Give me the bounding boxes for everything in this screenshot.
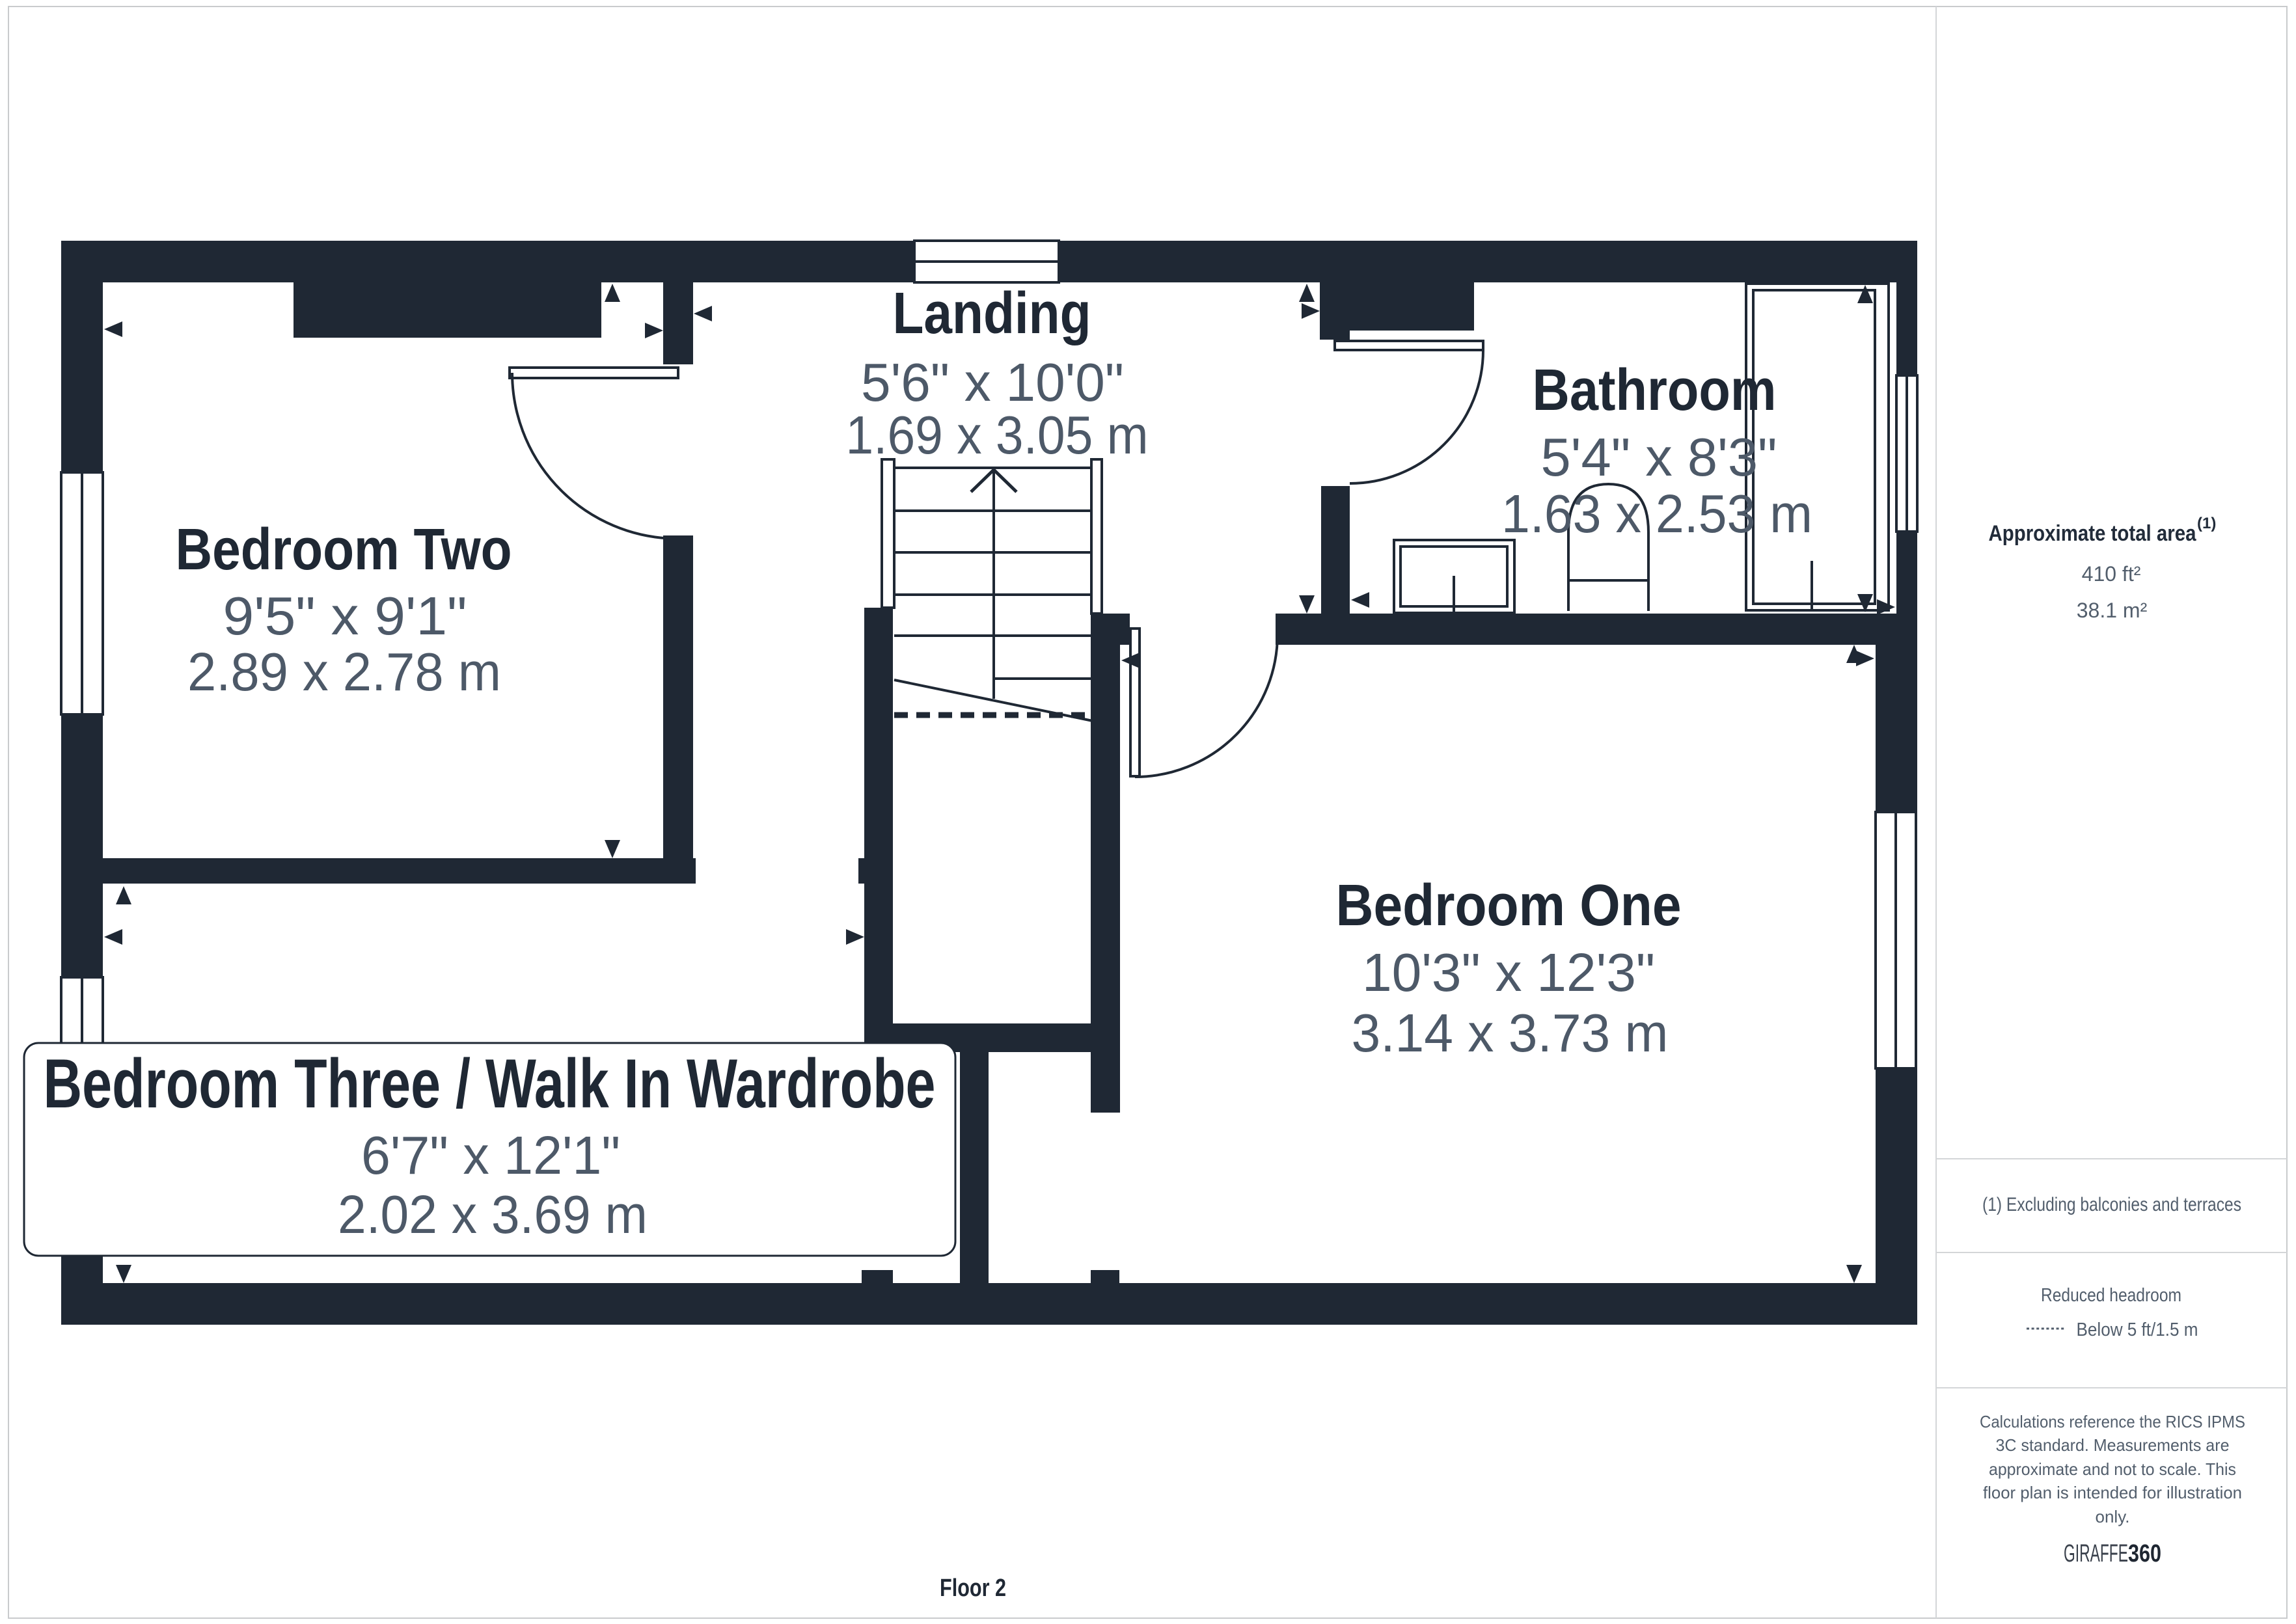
svg-text:38.1 m²: 38.1 m² [2077,599,2148,622]
svg-text:Bathroom: Bathroom [1533,358,1777,423]
svg-text:Floor 2: Floor 2 [940,1575,1006,1602]
svg-text:(1): (1) [2197,515,2216,532]
svg-text:10'3" x 12'3": 10'3" x 12'3" [1362,942,1655,1003]
svg-text:Bedroom Three / Walk In Wardro: Bedroom Three / Walk In Wardrobe [44,1044,936,1122]
svg-text:approximate and not to scale.: approximate and not to scale. This [1989,1459,2236,1479]
svg-text:Bedroom Two: Bedroom Two [176,517,512,582]
svg-text:360: 360 [2128,1540,2161,1567]
svg-text:5'6" x 10'0": 5'6" x 10'0" [861,352,1124,413]
svg-text:2.02 x 3.69 m: 2.02 x 3.69 m [338,1184,648,1245]
svg-text:Below 5 ft/1.5 m: Below 5 ft/1.5 m [2077,1319,2198,1340]
svg-text:Reduced headroom: Reduced headroom [2041,1285,2181,1306]
svg-text:9'5" x 9'1": 9'5" x 9'1" [223,586,467,646]
svg-text:3.14 x 3.73 m: 3.14 x 3.73 m [1352,1003,1669,1063]
svg-text:1.63 x 2.53 m: 1.63 x 2.53 m [1501,483,1812,544]
svg-text:floor plan is intended for ill: floor plan is intended for illustration [1983,1483,2242,1502]
svg-text:Calculations reference the RIC: Calculations reference the RICS IPMS [1980,1412,2245,1431]
svg-text:3C standard. Measurements are: 3C standard. Measurements are [1996,1435,2230,1455]
svg-text:Bedroom One: Bedroom One [1336,873,1682,938]
svg-text:410 ft²: 410 ft² [2082,562,2141,586]
svg-text:(1) Excluding balconies and te: (1) Excluding balconies and terraces [1982,1194,2241,1215]
svg-text:only.: only. [2096,1507,2130,1526]
svg-text:2.89 x 2.78 m: 2.89 x 2.78 m [187,642,501,702]
svg-text:1.69 x 3.05 m: 1.69 x 3.05 m [846,405,1149,465]
svg-text:5'4" x 8'3": 5'4" x 8'3" [1541,427,1777,487]
svg-text:6'7" x 12'1": 6'7" x 12'1" [361,1125,620,1185]
svg-text:GIRAFFE: GIRAFFE [2064,1540,2128,1567]
svg-text:Approximate total area: Approximate total area [1989,521,2197,546]
svg-text:Landing: Landing [893,281,1091,346]
